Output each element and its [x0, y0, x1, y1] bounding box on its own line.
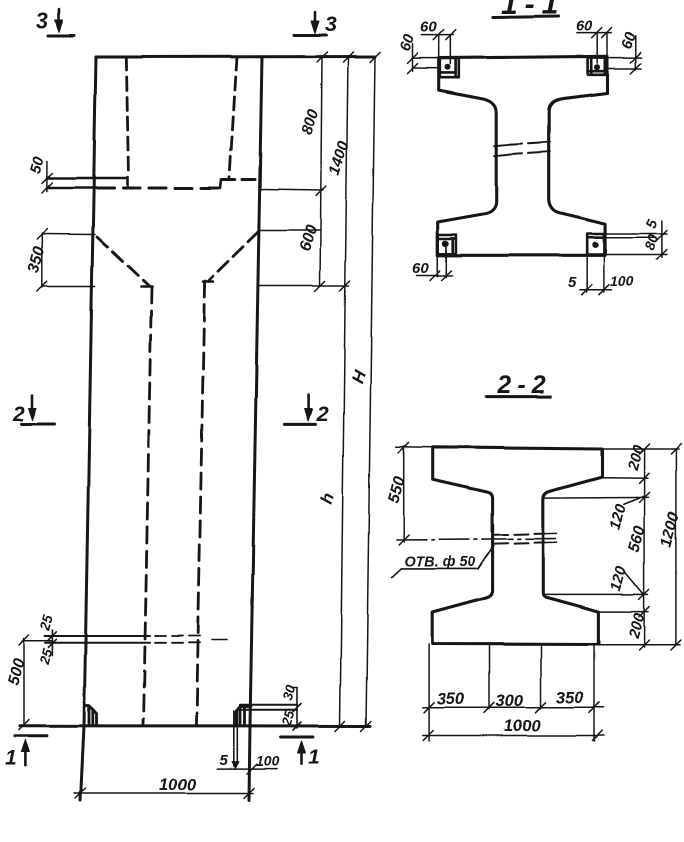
svg-text:1200: 1200	[657, 510, 683, 549]
svg-text:300: 300	[496, 692, 524, 710]
svg-text:1: 1	[308, 746, 320, 769]
svg-text:120: 120	[606, 502, 629, 531]
svg-text:100: 100	[611, 273, 635, 289]
svg-text:2-2: 2-2	[496, 371, 551, 399]
svg-text:200: 200	[625, 611, 648, 641]
svg-text:1: 1	[5, 747, 17, 770]
svg-text:60: 60	[576, 18, 593, 35]
svg-text:5: 5	[219, 752, 228, 769]
svg-text:1000: 1000	[159, 776, 197, 794]
svg-text:50: 50	[27, 154, 48, 175]
svg-text:1400: 1400	[326, 139, 353, 177]
svg-text:600: 600	[297, 223, 321, 253]
svg-text:ОТВ. ф 50: ОТВ. ф 50	[404, 555, 476, 571]
svg-text:800: 800	[299, 107, 323, 137]
svg-text:350: 350	[437, 690, 465, 708]
svg-text:560: 560	[625, 524, 648, 554]
svg-text:2: 2	[12, 403, 25, 426]
svg-text:1000: 1000	[504, 717, 542, 735]
svg-text:3: 3	[325, 13, 337, 36]
svg-text:30: 30	[280, 683, 299, 702]
svg-text:550: 550	[385, 475, 408, 505]
svg-text:350: 350	[556, 689, 584, 707]
svg-text:60: 60	[619, 29, 641, 51]
svg-text:5: 5	[568, 274, 577, 291]
svg-text:120: 120	[607, 564, 630, 593]
svg-text:350: 350	[25, 245, 48, 275]
svg-text:60: 60	[412, 260, 429, 277]
svg-text:3: 3	[36, 8, 48, 33]
svg-text:2: 2	[316, 403, 329, 426]
svg-text:60: 60	[420, 19, 437, 36]
svg-text:h: h	[317, 490, 338, 506]
svg-text:5: 5	[643, 217, 661, 230]
svg-text:100: 100	[256, 753, 280, 769]
svg-text:H: H	[348, 367, 370, 385]
svg-text:80: 80	[642, 232, 662, 252]
svg-text:500: 500	[5, 657, 28, 687]
svg-text:60: 60	[397, 31, 419, 53]
